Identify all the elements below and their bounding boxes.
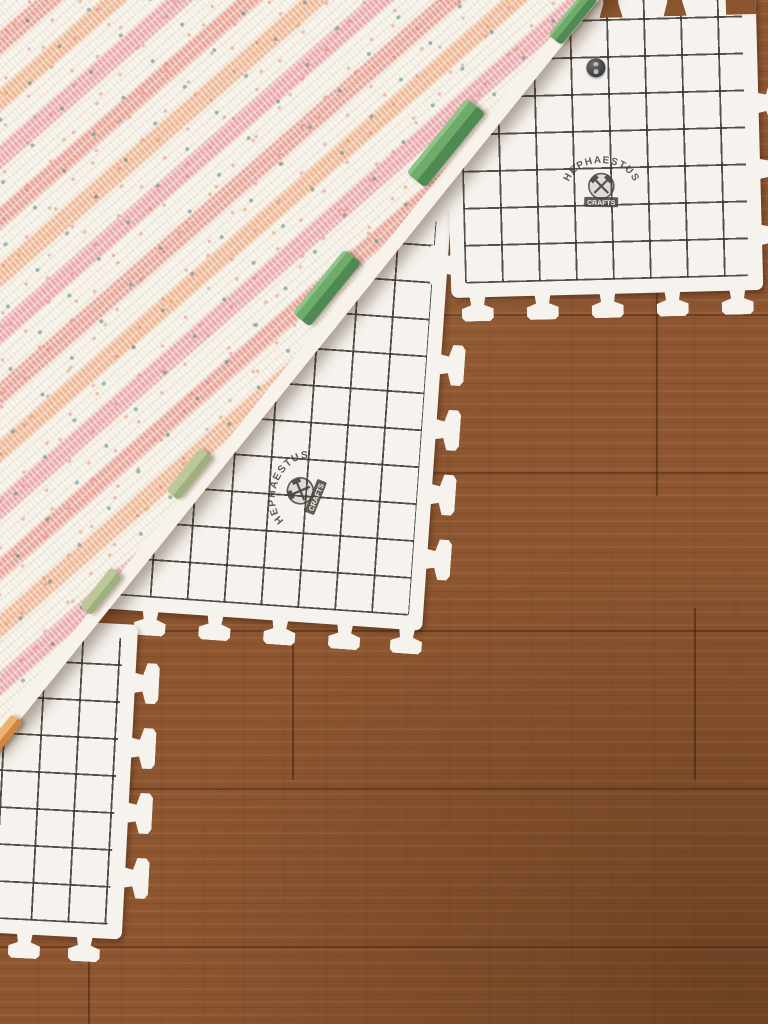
mat-tab xyxy=(759,145,768,192)
mat-tab xyxy=(760,211,768,258)
mat-tab xyxy=(424,536,452,584)
mat-tab xyxy=(196,614,234,641)
mat-tab xyxy=(428,242,453,289)
mat-tab xyxy=(123,855,150,902)
snap-hole xyxy=(593,69,598,74)
mat-tab xyxy=(429,471,457,519)
mat-tab xyxy=(433,406,461,454)
mat-tab xyxy=(757,79,768,126)
mat-tab xyxy=(719,289,756,315)
mat-tab xyxy=(459,296,496,322)
hephaestus-logo: HEPHAESTUS CRAFTS xyxy=(558,151,645,210)
mat-tab xyxy=(326,623,364,650)
mat-tab xyxy=(133,660,160,707)
plank-joint xyxy=(656,288,658,496)
mat-tab xyxy=(387,627,425,654)
plank-joint xyxy=(292,640,294,780)
mat-tab xyxy=(6,932,43,959)
plank-joint xyxy=(88,952,90,1024)
mat-tab xyxy=(65,936,102,963)
mat-notch xyxy=(725,0,757,15)
mat-tab xyxy=(126,790,153,837)
mat-tab xyxy=(438,341,466,389)
logo-banner-text: CRAFTS xyxy=(587,200,616,207)
mat-tab xyxy=(654,291,691,317)
mat-tab xyxy=(589,292,626,318)
mat-tab xyxy=(261,619,299,646)
mat-tab xyxy=(129,725,156,772)
mat-tab xyxy=(524,294,561,320)
hardwood-floor: HEPHAESTUS CRAFTS xyxy=(0,0,768,1024)
hephaestus-logo-art: HEPHAESTUS CRAFTS xyxy=(558,151,645,210)
snap-hole xyxy=(593,62,598,67)
plank-joint xyxy=(694,608,696,780)
